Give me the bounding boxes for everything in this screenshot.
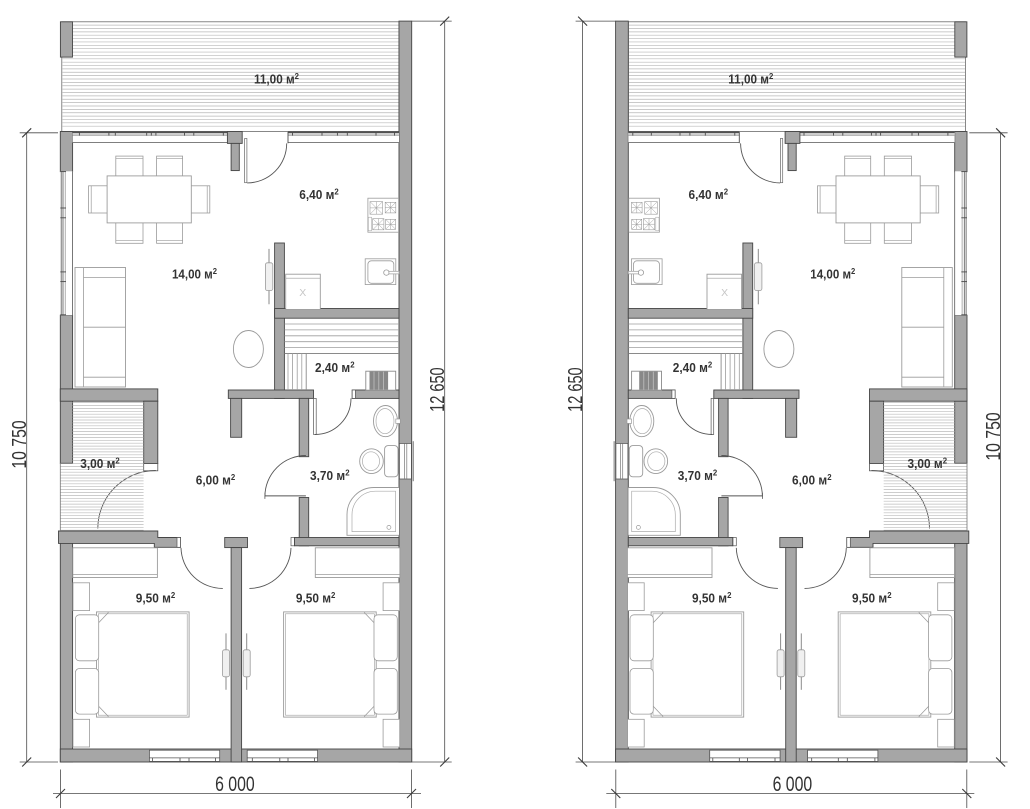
svg-text:3,00 м2: 3,00 м2 (908, 455, 948, 471)
svg-text:3,70 м2: 3,70 м2 (310, 468, 350, 484)
svg-text:6,40 м2: 6,40 м2 (299, 186, 339, 202)
svg-text:14,00 м2: 14,00 м2 (810, 266, 855, 282)
svg-text:6,40 м2: 6,40 м2 (689, 186, 729, 202)
svg-text:3,70 м2: 3,70 м2 (678, 468, 718, 484)
svg-text:14,00 м2: 14,00 м2 (172, 266, 217, 282)
svg-text:6 000: 6 000 (773, 773, 813, 796)
svg-text:2,40 м2: 2,40 м2 (673, 360, 713, 376)
svg-text:X: X (299, 287, 306, 299)
svg-text:9,50 м2: 9,50 м2 (296, 590, 336, 606)
svg-text:10 750: 10 750 (8, 420, 31, 468)
svg-text:9,50 м2: 9,50 м2 (852, 590, 892, 606)
svg-text:11,00 м2: 11,00 м2 (254, 71, 299, 87)
svg-text:10 750: 10 750 (982, 412, 1005, 460)
svg-text:3,00 м2: 3,00 м2 (80, 455, 120, 471)
svg-text:9,50 м2: 9,50 м2 (692, 590, 732, 606)
svg-text:6,00 м2: 6,00 м2 (196, 472, 236, 488)
svg-text:12 650: 12 650 (426, 367, 449, 412)
svg-text:6 000: 6 000 (215, 773, 255, 796)
svg-text:11,00 м2: 11,00 м2 (728, 71, 773, 87)
svg-text:2,40 м2: 2,40 м2 (315, 360, 355, 376)
svg-text:12 650: 12 650 (564, 367, 587, 412)
svg-text:X: X (721, 287, 728, 299)
svg-text:6,00 м2: 6,00 м2 (792, 472, 832, 488)
svg-text:9,50 м2: 9,50 м2 (136, 590, 176, 606)
